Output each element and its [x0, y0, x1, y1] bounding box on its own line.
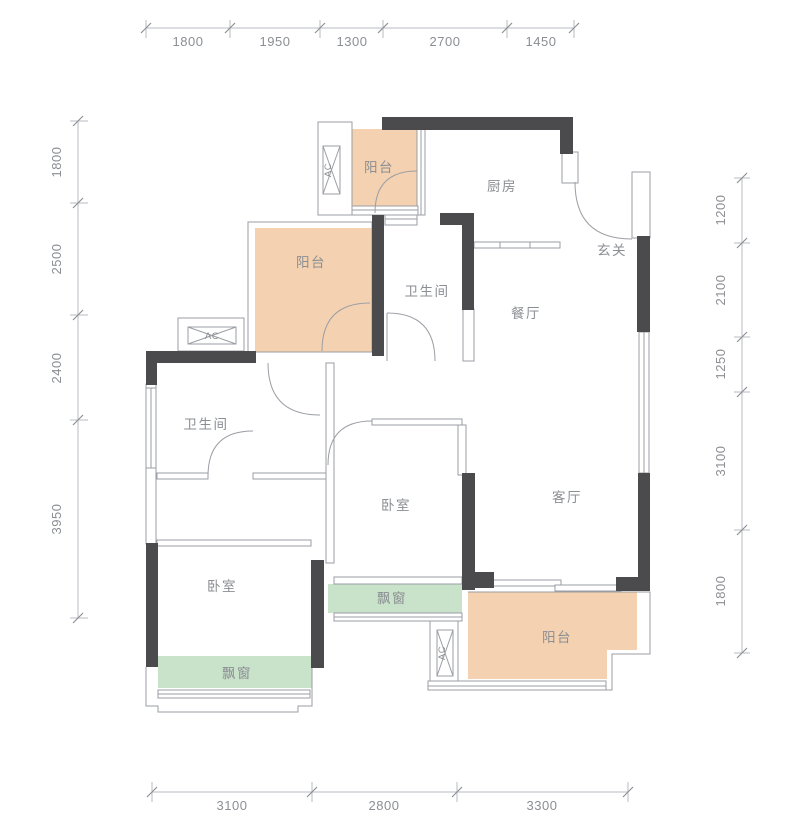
wall-segment: [440, 213, 474, 225]
window: [385, 214, 417, 225]
room-label-balcony-bottom: 阳台: [542, 630, 572, 645]
wall-segment: [146, 543, 158, 667]
wall-thin: [458, 425, 466, 475]
door-arc-hall: [268, 363, 320, 415]
window: [639, 332, 649, 473]
dim-label: 1800: [49, 147, 64, 178]
dim-label: 3300: [527, 798, 558, 813]
wall-segment: [637, 236, 650, 332]
dim-label: 2800: [369, 798, 400, 813]
dim-label: 3950: [49, 504, 64, 535]
room-label-living: 客厅: [552, 489, 582, 505]
dim-label: 1200: [713, 195, 728, 226]
dim-label: 1800: [713, 576, 728, 607]
dim-label: 1800: [173, 34, 204, 49]
room-label-bathroom-left: 卫生间: [184, 417, 229, 432]
door-arc-bathroom-left: [208, 431, 253, 476]
wall-segment: [146, 351, 256, 363]
dim-label: 2500: [49, 244, 64, 275]
floor-plan-drawing: AC AC AC 阳台 厨房 玄关 阳台 卫生间 餐厅 卫生间 卧室 客厅 卧室…: [0, 0, 800, 819]
room-label-bedroom-left: 卧室: [207, 578, 237, 594]
ac-label: AC: [323, 163, 334, 177]
room-label-balcony-left: 阳台: [296, 255, 326, 270]
window: [158, 690, 310, 698]
wall-segment: [560, 117, 573, 154]
window: [334, 613, 462, 621]
ac-unit-icon: AC: [188, 327, 236, 344]
balcony-left-area: [255, 228, 372, 352]
wall-segment: [462, 213, 474, 310]
dim-label: 3100: [217, 798, 248, 813]
wall-thin: [326, 363, 334, 563]
room-label-kitchen: 厨房: [487, 179, 517, 194]
wall-segment: [146, 351, 157, 385]
wall-thin: [334, 577, 462, 584]
room-label-dining: 餐厅: [511, 306, 541, 321]
room-label-bay-window-left: 飘窗: [222, 665, 252, 681]
door-arc-bedroom-mid: [328, 421, 372, 465]
ac-label: AC: [437, 646, 448, 660]
door-arc-bathroom-top: [387, 313, 435, 361]
ac-unit-icon: AC: [437, 630, 453, 676]
door-jamb: [632, 172, 650, 238]
wall-segment: [462, 572, 494, 588]
ac-unit-icon: AC: [323, 146, 340, 194]
sliding-door: [352, 206, 418, 215]
door-jamb: [562, 152, 578, 183]
wall-thin: [157, 473, 208, 479]
ac-label: AC: [205, 331, 219, 342]
window: [417, 129, 425, 215]
wall-segment: [616, 577, 650, 591]
dim-label: 1300: [337, 34, 368, 49]
wall-thin: [253, 473, 326, 479]
dim-label: 2700: [430, 34, 461, 49]
dim-label: 2100: [713, 275, 728, 306]
room-label-bathroom-top: 卫生间: [405, 284, 450, 299]
dim-label: 3100: [713, 446, 728, 477]
room-label-bay-window-mid: 飘窗: [377, 590, 407, 606]
sliding-door: [493, 580, 621, 591]
dim-label: 1950: [260, 34, 291, 49]
wall-segment: [382, 117, 573, 130]
floor-plan-page: AC AC AC 阳台 厨房 玄关 阳台 卫生间 餐厅 卫生间 卧室 客厅 卧室…: [0, 0, 800, 819]
room-label-entry: 玄关: [597, 242, 627, 258]
wall-thin: [463, 309, 474, 361]
dimension-labels-right: 1200 2100 1250 3100 1800: [713, 195, 728, 607]
wall-segment: [372, 215, 384, 356]
door-arc-entry: [575, 182, 632, 239]
dim-label: 1250: [713, 349, 728, 380]
window: [428, 681, 606, 690]
room-label-balcony-top: 阳台: [364, 160, 394, 175]
dim-label: 1450: [526, 34, 557, 49]
dimension-labels-left: 1800 2500 2400 3950: [49, 147, 64, 535]
window: [146, 388, 156, 468]
kitchen-pass: [474, 242, 560, 248]
wall-segment: [638, 473, 650, 585]
dimension-labels-bottom: 3100 2800 3300: [217, 798, 558, 813]
dim-label: 2400: [49, 353, 64, 384]
wall-thin: [372, 419, 462, 425]
wall-segment: [311, 560, 324, 668]
wall-thin: [157, 540, 311, 546]
room-label-bedroom-mid: 卧室: [381, 497, 411, 513]
